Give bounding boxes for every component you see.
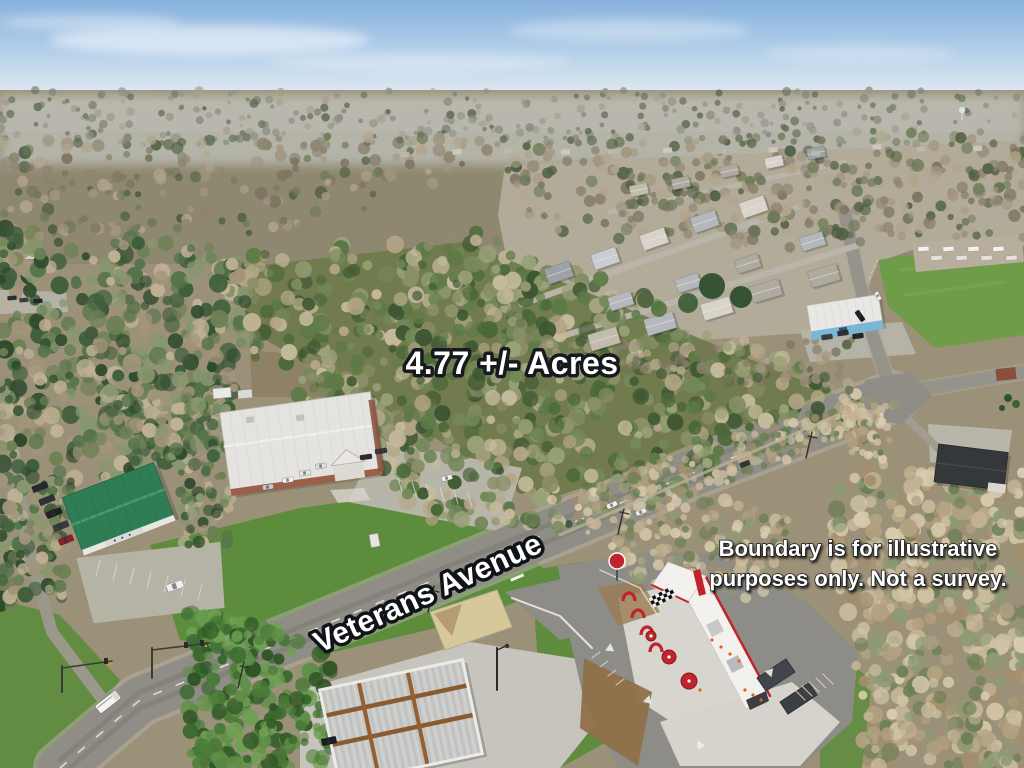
disclaimer-line2: purposes only. Not a survey.: [709, 566, 1006, 591]
road-sign: [369, 533, 380, 547]
disclaimer-line1: Boundary is for illustrative: [719, 536, 998, 561]
aerial-photo-canvas: 4.77 +/- Acres Veterans Avenue Boundary …: [0, 0, 1024, 768]
aerial-photograph: 4.77 +/- Acres Veterans Avenue Boundary …: [0, 0, 1024, 768]
acreage-label: 4.77 +/- Acres: [405, 345, 618, 381]
